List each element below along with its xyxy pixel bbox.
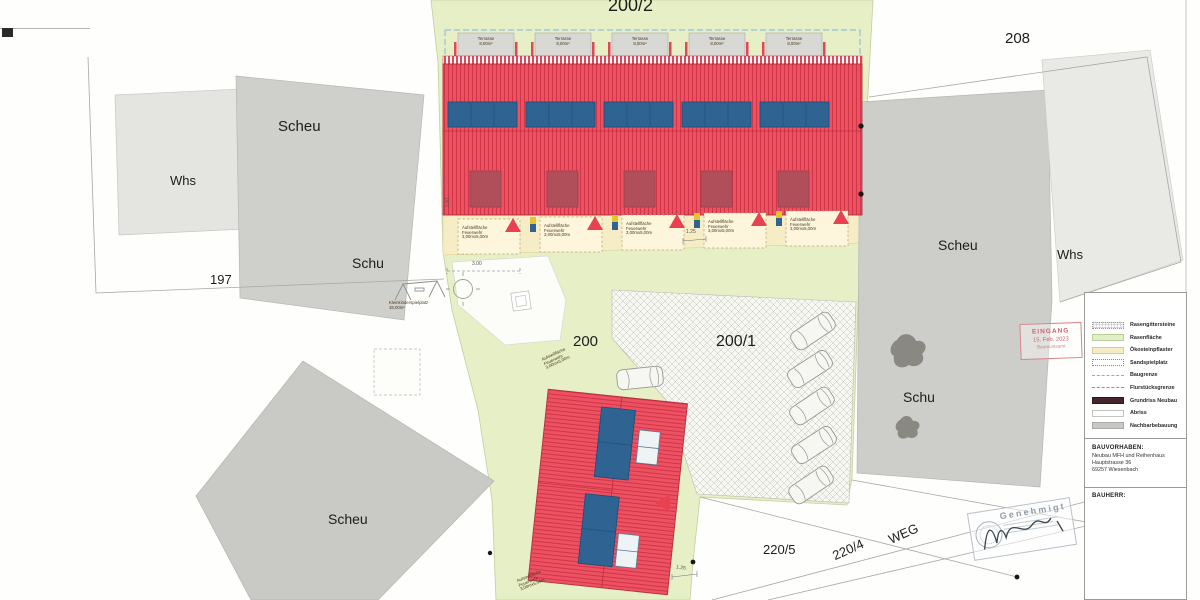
fire-area-label-4: Aufstellfläche Feuerwehr 3,00mx5,00m bbox=[708, 220, 734, 234]
fire-area-label-2: Aufstellfläche Feuerwehr 3,00mx5,00m bbox=[544, 224, 570, 238]
legend-item-flurstuecksgrenze: Flurstücksgrenze bbox=[1092, 384, 1181, 392]
project-info-block: BAUVORHABEN: Neubau MFH und Reihenhaus H… bbox=[1085, 438, 1186, 478]
dim-label-125-top: 1.25 bbox=[686, 230, 696, 235]
swatch-lawn bbox=[1092, 334, 1124, 341]
playground-label: Kleinkinderspielplatz 48,00m² bbox=[389, 301, 428, 310]
parcel-label-220-5: 220/5 bbox=[763, 543, 796, 557]
dim-label-300-h: 3.00 bbox=[472, 262, 482, 267]
bauvorhaben-line-1: Neubau MFH und Reihenhaus bbox=[1092, 453, 1181, 459]
swatch-demolition bbox=[1092, 410, 1124, 417]
parcel-label-197: 197 bbox=[210, 273, 232, 287]
fire-area-label-3: Aufstellfläche Feuerwehr 3,00mx5,00m bbox=[626, 222, 652, 236]
legend-item-grundriss-neubau: Grundriss Neubau bbox=[1092, 397, 1181, 405]
neighbor-label-schu-2: Schu bbox=[903, 390, 935, 405]
swatch-neighbor-buildings bbox=[1092, 422, 1124, 429]
terrace-label-5: Terrasse 8,00m² bbox=[766, 37, 822, 46]
fire-area-label-5: Aufstellfläche Feuerwehr 3,00mx5,00m bbox=[790, 218, 816, 232]
eingang-stamp-title: EINGANG bbox=[1021, 327, 1081, 336]
terrace-label-4: Terrasse 8,00m² bbox=[689, 37, 745, 46]
legend-item-rasengittersteine: Rasengittersteine bbox=[1092, 321, 1181, 329]
neighbor-label-scheu-2: Scheu bbox=[938, 238, 978, 253]
legend-panel: Rasengittersteine Rasenfläche Ökosteinpf… bbox=[1084, 292, 1187, 600]
dim-label-125-bottom: 1.25 bbox=[676, 565, 686, 572]
eingang-stamp: EINGANG 15. Feb. 2023 Baurechtsamt bbox=[1019, 322, 1082, 360]
legend-rows: Rasengittersteine Rasenfläche Ökosteinpf… bbox=[1085, 293, 1186, 438]
site-plan-sheet: 200/2 208 Scheu Whs 197 Schu Scheu Whs 2… bbox=[0, 0, 1200, 600]
parcel-label-200: 200 bbox=[573, 334, 598, 350]
fire-area-label-1: Aufstellfläche Feuerwehr 3,00mx5,00m bbox=[462, 226, 488, 240]
swatch-grid-paver bbox=[1092, 322, 1124, 329]
bauherr-title: BAUHERR: bbox=[1092, 493, 1181, 499]
bauherr-block: BAUHERR: bbox=[1085, 487, 1186, 511]
swatch-sand-playground bbox=[1092, 359, 1124, 366]
parcel-label-200-2: 200/2 bbox=[608, 0, 653, 15]
terrace-label-2: Terrasse 8,00m² bbox=[535, 37, 591, 46]
neighbor-label-schu-1: Schu bbox=[352, 256, 384, 271]
legend-item-abriss: Abriss bbox=[1092, 409, 1181, 417]
bauvorhaben-line-3: 69257 Wiesenbach bbox=[1092, 467, 1181, 473]
legend-item-sandspielplatz: Sandspielplatz bbox=[1092, 359, 1181, 367]
mfh-building bbox=[528, 389, 687, 595]
neighbor-label-scheu-1: Scheu bbox=[278, 119, 321, 135]
parcel-label-208: 208 bbox=[1005, 31, 1030, 47]
neighbor-whs-right bbox=[1042, 50, 1183, 302]
legend-item-oekosteinpflaster: Ökosteinpflaster bbox=[1092, 346, 1181, 354]
legend-item-nachbarbebauung: Nachbarbebauung bbox=[1092, 422, 1181, 430]
neighbor-scheu-right bbox=[857, 90, 1052, 487]
legend-item-baugrenze: Baugrenze bbox=[1092, 371, 1181, 379]
rowhouse-building bbox=[443, 33, 862, 215]
terrace-label-1: Terrasse 8,00m² bbox=[458, 37, 514, 46]
bauvorhaben-title: BAUVORHABEN: bbox=[1092, 445, 1181, 451]
terrace-label-3: Terrasse 8,00m² bbox=[612, 37, 668, 46]
parcel-label-200-1: 200/1 bbox=[716, 333, 756, 350]
dim-label-300-v: 3.00 bbox=[446, 198, 451, 208]
neighbor-scheu-bottom bbox=[196, 361, 494, 600]
legend-item-rasenflaeche: Rasenfläche bbox=[1092, 334, 1181, 342]
solar-panels-rowhouse bbox=[448, 102, 829, 127]
bauvorhaben-line-2: Hauptstrasse 36 bbox=[1092, 460, 1181, 466]
neighbor-label-whs-2: Whs bbox=[1057, 248, 1083, 262]
swatch-building-limit bbox=[1092, 375, 1124, 376]
neighbor-label-scheu-3: Scheu bbox=[328, 512, 368, 527]
swatch-new-building bbox=[1092, 397, 1124, 404]
swatch-parcel-boundary bbox=[1092, 387, 1124, 388]
eingang-stamp-office: Baurechtsamt bbox=[1021, 343, 1081, 350]
neighbor-label-whs-1: Whs bbox=[170, 174, 196, 188]
swatch-eco-paving bbox=[1092, 347, 1124, 354]
